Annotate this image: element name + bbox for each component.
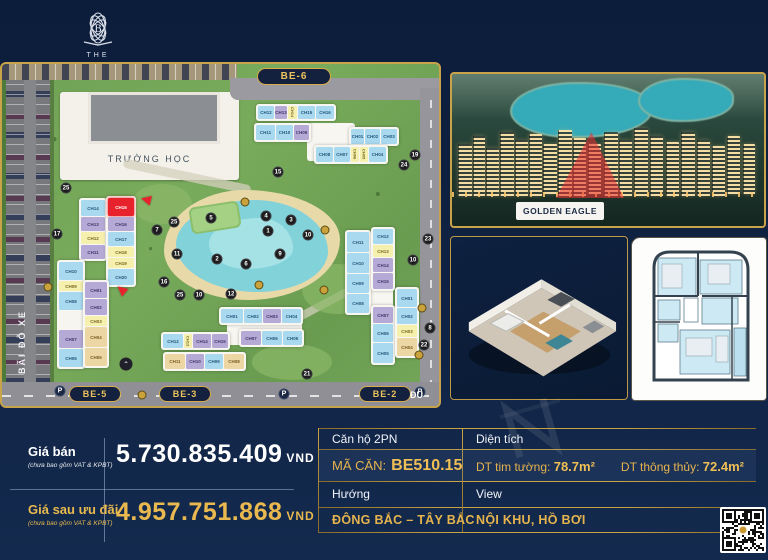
cluster-be5_colC: CH10CH09CH08CH07CH06 [57, 260, 85, 369]
map-unit-CH07: CH07 [241, 331, 261, 345]
building-pill-be6: BE-6 [257, 68, 331, 85]
tower-silhouette [712, 146, 725, 196]
building-pill-be2: BE-2 [359, 386, 411, 402]
map-unit-CH14: CH14 [193, 334, 211, 348]
floorplan-3d-card [450, 236, 628, 400]
price-note: (chưa bao gồm VAT & KPBT) [28, 462, 113, 469]
map-unit-CH12: CH12 [258, 106, 274, 119]
map-unit-CH07: CH07 [59, 330, 83, 348]
map-unit-CH01: CH01 [397, 289, 417, 307]
direction-value: ĐÔNG BẮC – TÂY BẮC [332, 513, 475, 527]
map-top-parking-strip [2, 64, 237, 80]
map-unit-CH02: CH02 [365, 129, 380, 144]
map-marker-2: 2 [212, 254, 223, 265]
map-unit-CH02: CH02 [397, 308, 417, 324]
chevron-up-icon: ⌃ [120, 358, 133, 371]
map-unit-CH06: CH06 [59, 349, 83, 367]
view-header: View [476, 487, 502, 501]
cluster-be6_row3: CH01CH02CH03 [349, 127, 399, 146]
map-unit-CH09: CH09 [294, 125, 309, 140]
map-marker-21: 21 [302, 369, 313, 380]
svg-text:B: B [94, 24, 101, 35]
floorplan-2d-card [632, 238, 766, 400]
poi-gold-dot [321, 226, 330, 235]
unit-spec-table: Căn hộ 2PN Diện tích MÃ CĂN:BE510.15 DT … [318, 428, 758, 534]
map-unit-CH12: CH12 [81, 232, 105, 244]
tower-silhouette [666, 142, 679, 196]
map-marker-7: 7 [152, 225, 163, 236]
tower-silhouette [634, 128, 648, 196]
cluster-be3_row3: CH12CH13CH14CH15 [161, 332, 230, 350]
cluster-be6_row2: CH11CH10CH09 [254, 123, 311, 142]
school-roof [88, 92, 220, 144]
map-unit-CH02: CH02 [85, 299, 107, 315]
map-unit-CH11: CH11 [256, 125, 275, 140]
cluster-be5_colA: CH14CH13CH12CH11 [79, 198, 107, 261]
map-unit-CH01: CH01 [221, 309, 243, 323]
cluster-be3_row2: CH07CH06CH05 [239, 329, 304, 347]
school-label: TRƯỜNG HỌC [60, 154, 239, 164]
map-unit-empty [59, 311, 83, 329]
map-unit-CH17: CH17 [108, 232, 134, 246]
map-unit-CH04: CH04 [369, 147, 386, 162]
map-marker-19: 19 [410, 150, 421, 161]
brand-emblem-icon: B [28, 4, 168, 46]
view-value: NỘI KHU, HỒ BƠI [476, 513, 586, 527]
cluster-be3_row1: CH01CH02CH03CH04 [219, 307, 303, 325]
tower-silhouette [681, 132, 695, 196]
tower-silhouette [697, 140, 710, 196]
tower-silhouette [743, 144, 755, 194]
map-unit-CH03: CH03 [85, 316, 107, 326]
currency-label: VND [286, 451, 314, 465]
unit-type-label: Căn hộ 2PN [332, 432, 397, 446]
cluster-be5_colB: CH15CH16CH17CH18CH19CH20 [106, 196, 136, 287]
map-unit-CH15: CH15 [298, 106, 315, 119]
tower-silhouette [458, 144, 472, 196]
poi-gold-dot [255, 281, 264, 290]
lake [510, 82, 652, 138]
parking-label: BÃI ĐỖ XE [17, 259, 27, 374]
map-unit-CH03: CH03 [381, 129, 397, 144]
unit-code: MÃ CĂN:BE510.15 [332, 457, 462, 475]
map-marker-10: 10 [408, 255, 419, 266]
floorplan-2d-drawing [632, 238, 766, 400]
map-marker-10: 10 [303, 230, 314, 241]
poi-gold-dot [44, 283, 53, 292]
map-unit-CH13: CH13 [373, 245, 393, 257]
tower-silhouette [619, 140, 632, 196]
map-marker-4: 4 [261, 211, 272, 222]
map-parking-lot [2, 80, 54, 384]
price-row-list: Giá bán (chưa bao gồm VAT & KPBT) 5.730.… [6, 434, 298, 486]
photo-caption: GOLDEN EAGLE [516, 202, 604, 220]
cluster-be2_colM2: CH07CH06CH05 [371, 305, 395, 365]
map-unit-CH11: CH11 [347, 232, 369, 252]
map-unit-CH05: CH05 [373, 343, 393, 363]
marketing-sheet: B THE BEVERLY BÃI ĐỖ XE TRƯỜNG HỌC [0, 0, 768, 560]
map-unit-CH03: CH03 [397, 325, 417, 337]
map-marker-22: 22 [419, 340, 430, 351]
map-unit-CH12: CH12 [373, 229, 393, 244]
map-unit-CH08: CH08 [224, 354, 244, 369]
map-marker-8: 8 [425, 323, 436, 334]
map-unit-CH06: CH06 [351, 147, 359, 162]
map-unit-CH01: CH01 [85, 282, 107, 298]
map-unit-CH12: CH12 [163, 334, 183, 348]
map-unit-CH13: CH13 [275, 106, 287, 119]
price-note: (chưa bao gồm VAT & KPBT) [28, 520, 113, 527]
map-unit-CH08: CH08 [59, 292, 83, 310]
price-value: 4.957.751.868VND [116, 498, 315, 527]
map-unit-CH08: CH08 [316, 147, 333, 162]
map-marker-11: 11 [172, 249, 183, 260]
map-marker-24: 24 [399, 160, 410, 171]
map-unit-CH13: CH13 [81, 217, 105, 231]
tower-silhouette [543, 144, 557, 194]
price-value: 5.730.835.409VND [116, 440, 315, 469]
map-marker-16: 16 [159, 277, 170, 288]
map-unit-CH18: CH18 [108, 247, 134, 257]
map-unit-CH10: CH10 [59, 262, 83, 280]
map-unit-CH07: CH07 [373, 307, 393, 323]
map-unit-CH03: CH03 [263, 309, 281, 323]
map-unit-CH11: CH11 [81, 245, 105, 259]
map-unit-CH14: CH14 [288, 106, 297, 119]
map-marker-6: 6 [241, 259, 252, 270]
map-unit-CH05: CH05 [283, 331, 302, 345]
aerial-photo: GOLDEN EAGLE [450, 72, 766, 228]
map-marker-5: 5 [206, 213, 217, 224]
map-marker-17: 17 [52, 229, 63, 240]
poi-gold-dot [415, 351, 424, 360]
map-unit-CH16: CH16 [316, 106, 334, 119]
price-row-discount: Giá sau ưu đãi (chưa bao gồm VAT & KPBT)… [6, 492, 298, 544]
currency-label: VND [286, 509, 314, 523]
cluster-be2_colL: CH11CH10CH09CH08 [345, 230, 371, 315]
poi-gold-dot [138, 391, 147, 400]
cluster-be2_colM1: CH12CH13CH14CH15 [371, 227, 395, 291]
cluster-be3_row4: CH11CH10CH09CH08 [163, 352, 246, 371]
map-marker-1: 1 [263, 226, 274, 237]
building-pill-be3: BE-3 [159, 386, 211, 402]
map-unit-CH09: CH09 [347, 274, 369, 293]
street-label: ĐU [410, 390, 423, 400]
map-unit-CH14: CH14 [373, 258, 393, 272]
area-header-label: Diện tích [476, 432, 523, 446]
map-unit-CH10: CH10 [186, 354, 204, 369]
map-marker-10: 10 [194, 290, 205, 301]
tower-silhouette [529, 134, 542, 196]
map-unit-CH04: CH04 [282, 309, 301, 323]
building-pill-be5: BE-5 [69, 386, 121, 402]
map-unit-CH08: CH08 [347, 294, 369, 313]
map-unit-CH02: CH02 [244, 309, 262, 323]
map-marker-25: 25 [169, 217, 180, 228]
map-unit-CH15: CH15 [212, 334, 228, 348]
map-marker-25: 25 [175, 290, 186, 301]
map-marker-9: 9 [275, 249, 286, 260]
map-unit-CH10: CH10 [276, 125, 293, 140]
map-unit-CH16: CH16 [108, 217, 134, 231]
tower-silhouette [650, 136, 663, 196]
qr-code [720, 507, 766, 553]
map-unit-CH01: CH01 [351, 129, 364, 144]
map-marker-15: 15 [273, 167, 284, 178]
cluster-be6_row4: CH08CH07CH06CH05CH04 [314, 145, 388, 164]
direction-header: Hướng [332, 487, 370, 501]
map-unit-CH19: CH19 [108, 258, 134, 268]
map-unit-CH06: CH06 [262, 331, 282, 345]
map-unit-CH07: CH07 [334, 147, 350, 162]
parking-icon: P [279, 389, 290, 400]
map-unit-CH13: CH13 [184, 334, 192, 348]
parking-icon: P [55, 386, 66, 397]
poi-gold-dot [418, 304, 427, 313]
map-unit-CH14: CH14 [81, 200, 105, 216]
map-unit-CH15: CH15 [373, 273, 393, 289]
map-unit-CH04: CH04 [85, 327, 107, 347]
lake [638, 78, 734, 122]
tower-silhouette [500, 132, 514, 196]
map-unit-CH05: CH05 [360, 147, 368, 162]
tower-silhouette [727, 136, 740, 194]
cluster-be6_row1: CH12CH13CH14CH15CH16 [256, 104, 336, 121]
map-marker-3: 3 [286, 215, 297, 226]
area-values: DT tim tường: 78.7m²DT thông thủy: 72.4m… [476, 459, 744, 474]
map-marker-12: 12 [226, 289, 237, 300]
map-unit-CH05: CH05 [85, 348, 107, 366]
cluster-be2_colR: CH01CH02CH03CH04 [395, 287, 419, 358]
map-unit-CH11: CH11 [165, 354, 185, 369]
price-label: Giá sau ưu đãi [28, 502, 118, 517]
map-unit-CH15: CH15 [108, 198, 134, 216]
tower-silhouette [473, 136, 485, 196]
map-marker-23: 23 [423, 234, 434, 245]
pricing-panel: Giá bán (chưa bao gồm VAT & KPBT) 5.730.… [6, 432, 298, 548]
map-unit-CH09: CH09 [59, 281, 83, 291]
tower-silhouette [515, 140, 528, 196]
map-unit-CH10: CH10 [347, 253, 369, 273]
floorplan-3d-render [451, 237, 626, 398]
poi-gold-dot [320, 286, 329, 295]
map-marker-25: 25 [61, 183, 72, 194]
tower-silhouette [486, 148, 499, 196]
cluster-be5_colD: CH01CH02CH03CH04CH05 [83, 280, 109, 368]
map-unit-CH09: CH09 [205, 354, 223, 369]
price-label: Giá bán [28, 444, 76, 459]
brand-line1: THE [28, 52, 168, 59]
map-unit-CH06: CH06 [373, 324, 393, 342]
poi-gold-dot [241, 198, 250, 207]
site-map: BÃI ĐỖ XE TRƯỜNG HỌC CH12CH13CH14CH15CH1… [0, 62, 441, 408]
